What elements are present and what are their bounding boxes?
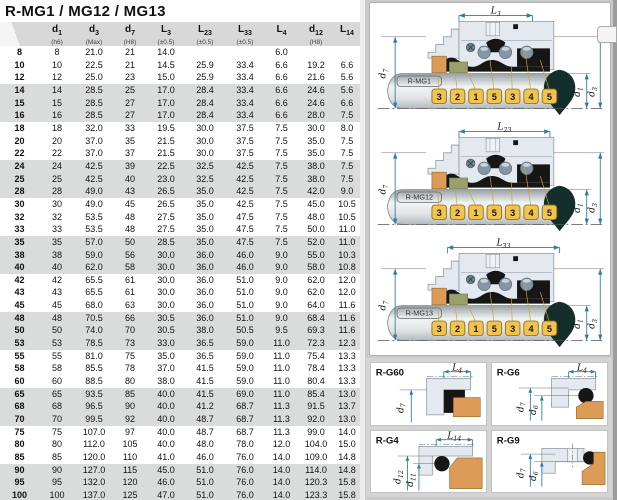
table-cell: 28 <box>39 185 75 198</box>
diagram-label: R-MG1 <box>408 77 431 86</box>
table-cell: 32.5 <box>185 173 225 186</box>
table-cell: 38 <box>39 249 75 262</box>
table-cell: 24.6 <box>298 84 334 97</box>
header-L23: L23(±0.5) <box>185 22 225 46</box>
table-cell: 30 <box>39 198 75 211</box>
header-L33: L33(±0.5) <box>225 22 265 46</box>
balloon-number: 3 <box>437 324 442 334</box>
table-cell: 85.5 <box>75 362 113 375</box>
table-cell: 25 <box>113 84 147 97</box>
balloon-number: 4 <box>529 92 535 102</box>
dim-d1 <box>585 74 589 109</box>
table-cell: 59.0 <box>225 350 265 363</box>
table-cell: 78.5 <box>75 337 113 350</box>
table-cell: 51.0 <box>185 476 225 489</box>
table-cell: 18 <box>39 122 75 135</box>
diagram-label: R-MG12 <box>406 193 433 202</box>
table-cell: 9.0 <box>334 185 360 198</box>
table-cell: 97 <box>113 426 147 439</box>
table-row: 323253.54827.535.047.57.548.010.5 <box>0 211 360 224</box>
row-label: 68 <box>0 400 39 413</box>
table-cell: 25.9 <box>185 71 225 84</box>
row-label: 18 <box>0 122 39 135</box>
dimension-table-body: 8821.02114.06.0101022.52114.525.933.46.6… <box>0 46 360 500</box>
table-cell: 12.0 <box>265 438 298 451</box>
table-cell: 80.4 <box>298 375 334 388</box>
seal-face-olive <box>449 62 467 73</box>
seat-ring-orange <box>453 398 480 417</box>
table-cell: 28.4 <box>185 109 225 122</box>
table-cell: 104.0 <box>298 438 334 451</box>
table-cell: 15.0 <box>334 438 360 451</box>
table-cell: 68 <box>39 400 75 413</box>
row-label: 80 <box>0 438 39 451</box>
table-cell: 75 <box>39 426 75 439</box>
dim-top-arrow-right <box>554 245 560 250</box>
table-cell: 62.0 <box>298 286 334 299</box>
table-row: 8080112.010540.048.078.012.0104.015.0 <box>0 438 360 451</box>
table-cell: 26.5 <box>147 185 185 198</box>
set-screw <box>486 138 500 152</box>
table-cell: 33.4 <box>225 71 265 84</box>
table-cell: 61 <box>113 274 147 287</box>
table-cell: 33.4 <box>225 97 265 110</box>
table-cell: 6.6 <box>265 109 298 122</box>
table-cell: 8 <box>39 46 75 59</box>
table-cell: 36.0 <box>185 299 225 312</box>
table-row: 8821.02114.06.0 <box>0 46 360 59</box>
table-cell: 7.5 <box>265 211 298 224</box>
dimension-table: d1(h6) d3(Max) d7(H8) L3(±0.5) L23(±0.5)… <box>0 22 360 500</box>
table-cell: 92.0 <box>298 413 334 426</box>
table-cell: 19.2 <box>298 59 334 72</box>
table-cell: 76.0 <box>225 476 265 489</box>
table-row: 353557.05028.535.047.57.552.011.0 <box>0 236 360 249</box>
seat-diagram-g4: R-G4 L14 <box>371 431 486 493</box>
table-row: 656593.58540.041.569.011.085.413.0 <box>0 388 360 401</box>
table-row: 333353.54827.535.047.57.550.011.0 <box>0 223 360 236</box>
table-cell: 25.9 <box>185 59 225 72</box>
table-header-row: d1(h6) d3(Max) d7(H8) L3(±0.5) L23(±0.5)… <box>0 22 360 46</box>
table-cell: 76.0 <box>225 451 265 464</box>
table-cell: 107.0 <box>75 426 113 439</box>
table-cell: 19.5 <box>147 122 185 135</box>
table-cell: 24 <box>39 160 75 173</box>
gland-staircase <box>428 261 459 290</box>
table-cell: 35.0 <box>185 198 225 211</box>
table-cell: 90 <box>39 464 75 477</box>
table-cell: 37.0 <box>75 147 113 160</box>
table-cell: 27.5 <box>147 211 185 224</box>
table-cell: 42.5 <box>75 173 113 186</box>
table-cell: 27 <box>113 97 147 110</box>
dim-L4-label: L4 <box>451 363 462 374</box>
table-cell: 66 <box>113 312 147 325</box>
table-cell: 40.0 <box>147 400 185 413</box>
table-row: 202037.03521.530.037.57.535.07.5 <box>0 135 360 148</box>
table-cell: 14.0 <box>147 46 185 59</box>
table-cell: 47.5 <box>225 236 265 249</box>
table-cell: 15.8 <box>334 489 360 500</box>
table-cell: 58 <box>39 362 75 375</box>
table-cell: 12 <box>39 71 75 84</box>
table-cell: 48.7 <box>185 413 225 426</box>
dim-d3 <box>598 37 602 109</box>
table-cell: 30.5 <box>147 312 185 325</box>
table-cell: 14.8 <box>334 451 360 464</box>
dim-d7-label: d7 <box>377 69 389 79</box>
table-cell: 28.5 <box>75 97 113 110</box>
row-label: 55 <box>0 350 39 363</box>
table-cell: 15.8 <box>334 476 360 489</box>
table-row: 9090127.011545.051.076.014.0114.014.8 <box>0 464 360 477</box>
table-cell: 65.5 <box>75 274 113 287</box>
table-cell: 5.6 <box>334 71 360 84</box>
table-cell: 36.5 <box>185 350 225 363</box>
row-label: 100 <box>0 489 39 500</box>
table-cell: 38.0 <box>147 375 185 388</box>
row-label: 75 <box>0 426 39 439</box>
table-cell: 11.0 <box>265 388 298 401</box>
mg-diagram: R-MG13 <box>370 235 608 351</box>
table-cell: 10.5 <box>334 198 360 211</box>
balloon-number: 5 <box>547 324 552 334</box>
seat-panel: R-G60 L4 d7 <box>366 358 612 497</box>
table-cell: 21.5 <box>147 147 185 160</box>
table-cell: 32.0 <box>75 122 113 135</box>
table-cell: 50 <box>39 324 75 337</box>
row-label: 8 <box>0 46 39 59</box>
dim-top-label: L33 <box>495 238 510 250</box>
row-label: 14 <box>0 84 39 97</box>
table-cell: 9.0 <box>265 274 298 287</box>
table-cell: 76.0 <box>225 489 265 500</box>
table-cell: 38.0 <box>185 324 225 337</box>
table-cell: 51.0 <box>185 464 225 477</box>
table-cell: 48.0 <box>298 211 334 224</box>
table-cell: 137.0 <box>75 489 113 500</box>
table-row: 686896.59040.041.268.711.391.513.7 <box>0 400 360 413</box>
table-cell: 70 <box>39 413 75 426</box>
table-cell: 70 <box>113 324 147 337</box>
row-label: 40 <box>0 261 39 274</box>
balloon-number: 3 <box>510 324 515 334</box>
table-cell: 10 <box>39 59 75 72</box>
seat-label: R-G60 <box>376 368 404 379</box>
table-cell: 68.7 <box>225 400 265 413</box>
seal-face-olive <box>449 294 467 305</box>
o-ring <box>578 388 593 403</box>
table-cell: 42.5 <box>225 185 265 198</box>
table-cell: 125 <box>113 489 147 500</box>
table-cell: 39 <box>113 160 147 173</box>
table-cell: 37 <box>113 147 147 160</box>
table-cell: 60 <box>39 375 75 388</box>
table-cell: 48 <box>39 312 75 325</box>
row-label: 15 <box>0 97 39 110</box>
row-label: 70 <box>0 413 39 426</box>
table-cell: 38.0 <box>298 173 334 186</box>
table-cell: 7.5 <box>334 147 360 160</box>
seat-box-g9: R-G9 d7 d6 <box>491 430 608 494</box>
table-cell: 35.0 <box>185 223 225 236</box>
table-cell: 62.0 <box>75 261 113 274</box>
table-cell: 22.5 <box>147 160 185 173</box>
table-cell: 33 <box>39 223 75 236</box>
table-cell: 43 <box>113 185 147 198</box>
row-label: 33 <box>0 223 39 236</box>
table-cell: 7.5 <box>265 223 298 236</box>
mg-diagram-panel: R-MG1 <box>369 2 611 356</box>
table-row: 434365.56130.036.051.09.062.012.0 <box>0 286 360 299</box>
dim-d3-label: d3 <box>586 319 598 329</box>
seal-face-olive <box>449 178 467 189</box>
table-cell: 41.5 <box>185 388 225 401</box>
table-cell: 7.5 <box>265 147 298 160</box>
balloon-number: 5 <box>547 208 552 218</box>
dim-top-label: L3 <box>490 6 501 18</box>
table-cell: 33.0 <box>147 337 185 350</box>
table-cell: 42.5 <box>75 160 113 173</box>
table-cell: 14.0 <box>265 451 298 464</box>
table-cell: 46.0 <box>225 249 265 262</box>
table-cell: 14.5 <box>147 59 185 72</box>
table-cell: 6.6 <box>265 84 298 97</box>
dim-top-label: L23 <box>496 122 511 134</box>
header-d3: d3(Max) <box>75 22 113 46</box>
table-cell: 51.0 <box>225 274 265 287</box>
table-cell: 11.0 <box>334 223 360 236</box>
header-d1: d1(h6) <box>39 22 75 46</box>
table-cell: 93.5 <box>75 388 113 401</box>
table-cell: 59.0 <box>75 249 113 262</box>
dim-d12-label: d12 <box>394 470 405 484</box>
table-cell: 7.5 <box>334 160 360 173</box>
table-cell: 23 <box>113 71 147 84</box>
row-label: 65 <box>0 388 39 401</box>
table-cell: 33 <box>113 122 147 135</box>
table-cell: 13.7 <box>334 400 360 413</box>
row-label: 95 <box>0 476 39 489</box>
table-cell: 11.0 <box>334 236 360 249</box>
part-balloons: 3 2 1 5 3 4 5 <box>432 89 557 104</box>
table-cell: 85 <box>113 388 147 401</box>
table-cell: 28.4 <box>185 84 225 97</box>
table-cell: 11.3 <box>265 413 298 426</box>
table-cell: 13.3 <box>334 375 360 388</box>
table-cell: 99.0 <box>298 426 334 439</box>
table-row: 181832.03319.530.037.57.530.08.0 <box>0 122 360 135</box>
header-L14: L14 <box>334 22 360 46</box>
balloon-number: 5 <box>492 208 497 218</box>
table-cell: 11.6 <box>334 312 360 325</box>
table-cell: 11.6 <box>334 324 360 337</box>
table-cell: 14.8 <box>334 464 360 477</box>
table-cell: 7.5 <box>265 198 298 211</box>
balloon-number: 2 <box>455 324 460 334</box>
dim-top-arrow-right <box>544 129 550 134</box>
header-d12: d12(H8) <box>298 22 334 46</box>
table-row: 161628.52717.028.433.46.628.07.5 <box>0 109 360 122</box>
table-cell: 9.0 <box>265 312 298 325</box>
table-cell <box>225 46 265 59</box>
row-label: 16 <box>0 109 39 122</box>
table-cell: 30.0 <box>147 299 185 312</box>
table-cell: 36.0 <box>185 274 225 287</box>
lock-dot <box>513 256 518 261</box>
table-cell: 7.5 <box>265 173 298 186</box>
drive-collar-orange <box>432 56 447 72</box>
table-cell: 114.0 <box>298 464 334 477</box>
seat-ring-orange <box>576 401 603 418</box>
table-cell: 51.0 <box>225 286 265 299</box>
table-cell: 21.0 <box>75 46 113 59</box>
row-label: 50 <box>0 324 39 337</box>
table-cell: 43 <box>39 286 75 299</box>
table-cell: 127.0 <box>75 464 113 477</box>
table-cell: 41.5 <box>185 362 225 375</box>
dim-d7-label: d7 <box>517 468 528 478</box>
table-cell: 16 <box>39 109 75 122</box>
table-cell: 11.3 <box>265 400 298 413</box>
table-cell: 45.0 <box>298 198 334 211</box>
table-cell: 42.0 <box>298 185 334 198</box>
table-cell: 7.5 <box>265 236 298 249</box>
table-cell: 10.8 <box>334 261 360 274</box>
seat-label: R-G6 <box>497 368 520 379</box>
table-cell: 85.4 <box>298 388 334 401</box>
table-cell: 33.4 <box>225 84 265 97</box>
table-cell: 6.6 <box>265 71 298 84</box>
table-cell: 85 <box>39 451 75 464</box>
table-cell: 30.0 <box>147 286 185 299</box>
table-cell: 21.5 <box>147 135 185 148</box>
seat-box-g4: R-G4 L14 <box>370 430 487 494</box>
table-row: 100100137.012547.051.076.014.0123.315.8 <box>0 489 360 500</box>
row-label: 10 <box>0 59 39 72</box>
gland-staircase <box>428 29 459 58</box>
table-cell: 42 <box>39 274 75 287</box>
table-row: 151528.52717.028.433.46.624.66.6 <box>0 97 360 110</box>
table-cell: 41.0 <box>147 451 185 464</box>
table-section: R-MG1 / MG12 / MG13 d1(h6) d3(Max) d7(H8… <box>0 0 360 500</box>
dim-d11 <box>417 463 421 490</box>
table-cell: 10.3 <box>334 249 360 262</box>
table-cell: 36.0 <box>185 286 225 299</box>
table-cell: 90 <box>113 400 147 413</box>
table-cell: 12.0 <box>334 274 360 287</box>
table-cell: 37.5 <box>225 147 265 160</box>
dim-d7 <box>409 390 413 423</box>
table-cell: 91.5 <box>298 400 334 413</box>
table-cell: 40.0 <box>147 413 185 426</box>
table-cell: 47.0 <box>147 489 185 500</box>
table-cell: 109.0 <box>298 451 334 464</box>
table-cell: 30.0 <box>185 147 225 160</box>
table-row: 242442.53922.532.542.57.538.07.5 <box>0 160 360 173</box>
lock-dot <box>513 24 518 29</box>
table-cell: 46.0 <box>185 451 225 464</box>
table-cell: 11.6 <box>334 299 360 312</box>
table-cell: 11.0 <box>265 350 298 363</box>
table-cell: 7.5 <box>265 135 298 148</box>
table-cell: 17.0 <box>147 84 185 97</box>
table-cell: 7.5 <box>265 185 298 198</box>
header-L3: L3(±0.5) <box>147 22 185 46</box>
table-cell: 42.5 <box>225 160 265 173</box>
catalog-page: R-MG1 / MG12 / MG13 d1(h6) d3(Max) d7(H8… <box>0 0 617 500</box>
table-cell: 58 <box>113 261 147 274</box>
dim-d3-label: d3 <box>586 203 598 213</box>
table-cell: 48.7 <box>185 426 225 439</box>
table-cell: 59.0 <box>225 362 265 375</box>
table-cell: 80 <box>113 375 147 388</box>
table-cell: 30.0 <box>147 274 185 287</box>
table-cell: 48 <box>113 223 147 236</box>
row-label: 22 <box>0 147 39 160</box>
table-cell: 15.0 <box>147 71 185 84</box>
table-cell <box>334 46 360 59</box>
table-cell: 55.0 <box>298 249 334 262</box>
table-row: 606088.58038.041.559.011.080.413.3 <box>0 375 360 388</box>
table-cell: 73 <box>113 337 147 350</box>
row-label: 60 <box>0 375 39 388</box>
table-cell: 81.0 <box>75 350 113 363</box>
balloon-number: 3 <box>510 92 515 102</box>
table-cell: 105 <box>113 438 147 451</box>
table-cell: 30.0 <box>185 122 225 135</box>
dim-L14-label: L14 <box>446 431 461 442</box>
table-cell: 40.0 <box>147 438 185 451</box>
mg-diagram: R-MG1 <box>370 3 608 119</box>
table-cell: 9.0 <box>265 286 298 299</box>
table-cell: 30.0 <box>147 261 185 274</box>
table-cell: 36.5 <box>185 337 225 350</box>
table-cell: 49.0 <box>75 185 113 198</box>
table-cell: 40.0 <box>147 426 185 439</box>
dim-d7-label: d7 <box>397 403 408 413</box>
table-cell: 9.0 <box>265 249 298 262</box>
dim-d1 <box>585 306 589 341</box>
table-row: 454568.06330.036.051.09.064.011.6 <box>0 299 360 312</box>
dim-L4-label: L4 <box>576 363 587 374</box>
table-cell: 37.0 <box>147 362 185 375</box>
table-cell: 62.0 <box>298 274 334 287</box>
diagram-section: R-MG1 <box>360 0 617 500</box>
corner-tab <box>597 26 617 43</box>
table-cell: 45.0 <box>147 464 185 477</box>
table-cell: 7.5 <box>334 135 360 148</box>
table-cell: 14.0 <box>334 426 360 439</box>
table-cell: 45 <box>113 198 147 211</box>
table-row: 484870.56630.536.051.09.068.411.6 <box>0 312 360 325</box>
table-cell: 21.6 <box>298 71 334 84</box>
table-cell: 7.5 <box>334 173 360 186</box>
table-cell: 6.6 <box>265 97 298 110</box>
seat-box-g60: R-G60 L4 d7 <box>370 362 487 426</box>
table-cell: 40.0 <box>147 388 185 401</box>
table-cell: 56 <box>113 249 147 262</box>
table-cell: 78.0 <box>225 438 265 451</box>
table-cell: 36.0 <box>185 312 225 325</box>
balloon-number: 5 <box>547 92 552 102</box>
table-cell: 46.0 <box>225 261 265 274</box>
dim-d6 <box>540 396 544 421</box>
table-cell: 27 <box>113 109 147 122</box>
table-cell: 11.0 <box>265 375 298 388</box>
table-cell: 35.0 <box>298 135 334 148</box>
drive-collar-orange <box>432 288 447 304</box>
